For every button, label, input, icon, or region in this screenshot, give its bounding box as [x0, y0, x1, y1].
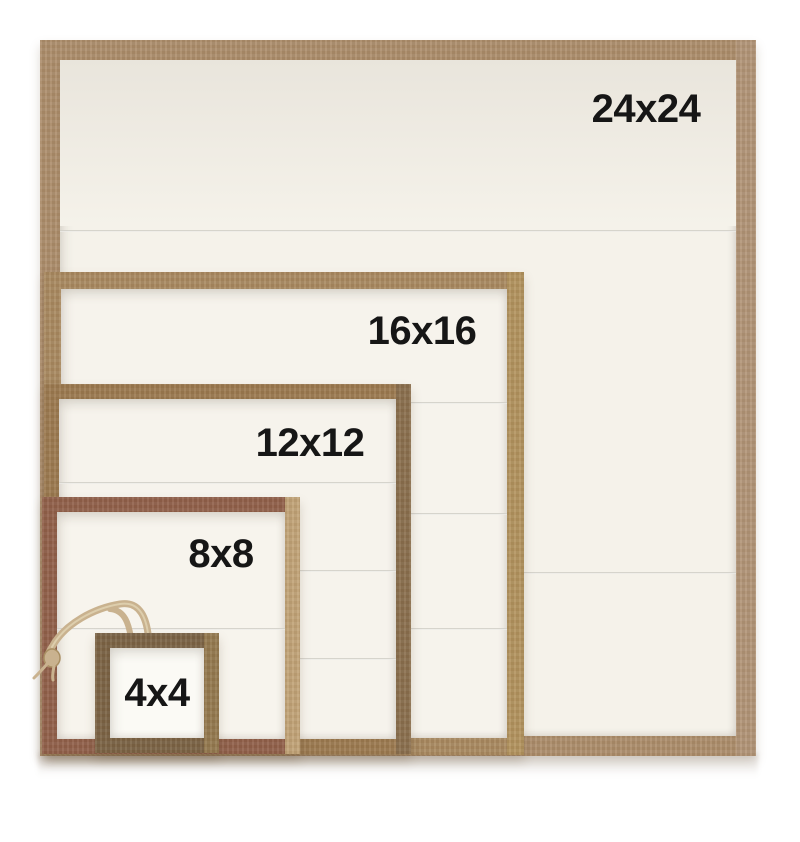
shiplap-line — [57, 628, 285, 630]
floor-shadow — [38, 753, 758, 777]
frame-4x4-size-label: 4x4 — [124, 673, 189, 713]
shiplap-line — [60, 230, 736, 232]
frame-24x24-size-label: 24x24 — [592, 89, 701, 129]
frame-12x12-size-label: 12x12 — [256, 423, 365, 463]
frame-16x16-size-label: 16x16 — [368, 311, 477, 351]
product-photo: 24x24 16x16 12x12 8x8 4x4 — [0, 0, 800, 842]
frame-8x8-size-label: 8x8 — [188, 534, 253, 574]
shiplap-line — [59, 482, 396, 484]
shiplap-top-band — [60, 60, 736, 226]
frame-4x4: 4x4 — [95, 633, 219, 753]
